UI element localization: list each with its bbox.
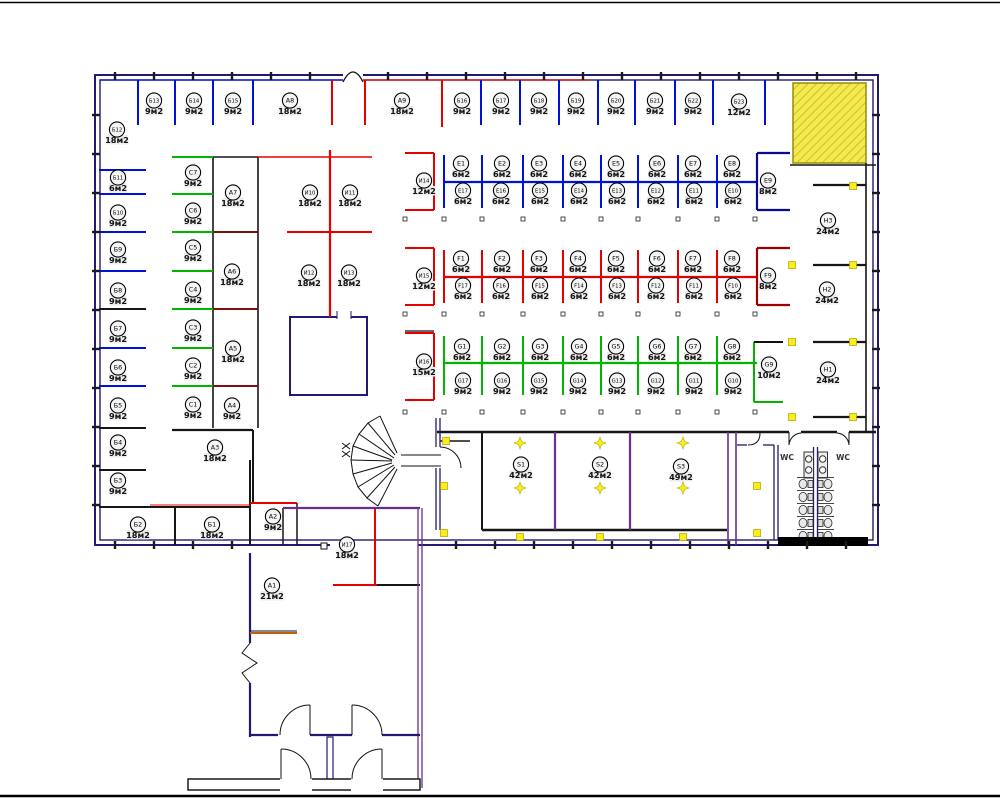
svg-text:Б16: Б16: [457, 99, 468, 105]
room-label: A818м2: [278, 93, 302, 116]
svg-text:6м2: 6м2: [531, 291, 549, 301]
svg-text:F14: F14: [574, 284, 584, 290]
svg-text:Б20: Б20: [611, 99, 622, 105]
svg-text:9м2: 9м2: [184, 371, 202, 381]
svg-text:Б11: Б11: [113, 176, 123, 182]
svg-text:G14: G14: [573, 379, 584, 385]
room-label: G109м2: [724, 373, 742, 396]
room-label: F156м2: [531, 278, 549, 301]
svg-text:Б13: Б13: [149, 99, 159, 105]
svg-text:C4: C4: [189, 286, 198, 294]
svg-text:9м2: 9м2: [454, 386, 472, 396]
svg-text:F17: F17: [458, 284, 468, 290]
svg-text:F1: F1: [457, 255, 465, 263]
svg-text:H3: H3: [824, 217, 833, 225]
svg-text:C3: C3: [189, 324, 198, 332]
room-label: Б116м2: [109, 170, 127, 193]
room-label: F56м2: [607, 251, 625, 274]
svg-text:C2: C2: [189, 362, 198, 370]
room-label: F166м2: [492, 278, 510, 301]
room-label: Б89м2: [109, 283, 127, 306]
room-label: E46м2: [569, 156, 587, 179]
room-label: F126м2: [647, 278, 665, 301]
svg-text:6м2: 6м2: [492, 291, 510, 301]
room-label: Б99м2: [109, 242, 127, 265]
svg-text:A1: A1: [268, 582, 276, 590]
svg-text:6м2: 6м2: [530, 264, 548, 274]
room-label: G139м2: [608, 373, 626, 396]
room-label: F26м2: [493, 251, 511, 274]
room-label: Б169м2: [453, 93, 471, 116]
svg-text:Б14: Б14: [189, 99, 200, 105]
room-label: Б49м2: [109, 435, 127, 458]
svg-text:8м2: 8м2: [759, 281, 777, 291]
room-label: C49м2: [184, 282, 202, 305]
svg-text:6м2: 6м2: [531, 196, 549, 206]
svg-text:G3: G3: [535, 343, 544, 351]
svg-text:6м2: 6м2: [724, 196, 742, 206]
room-label: C69м2: [184, 203, 202, 226]
svg-text:21м2: 21м2: [260, 591, 284, 601]
svg-text:9м2: 9м2: [184, 178, 202, 188]
svg-text:H1: H1: [824, 366, 833, 374]
svg-text:18м2: 18м2: [221, 354, 245, 364]
svg-text:9м2: 9м2: [530, 386, 548, 396]
svg-text:24м2: 24м2: [815, 295, 839, 305]
svg-text:6м2: 6м2: [493, 352, 511, 362]
room-label: G159м2: [530, 373, 548, 396]
svg-text:G4: G4: [574, 343, 583, 351]
svg-text:6м2: 6м2: [647, 291, 665, 301]
room-label: F176м2: [454, 278, 472, 301]
room-label: G119м2: [685, 373, 703, 396]
svg-text:6м2: 6м2: [648, 169, 666, 179]
svg-text:G1: G1: [457, 343, 466, 351]
room-label: И1615м2: [412, 354, 436, 377]
svg-text:E13: E13: [612, 189, 622, 195]
svg-text:A4: A4: [228, 402, 236, 410]
room-label: E86м2: [723, 156, 741, 179]
svg-text:12м2: 12м2: [727, 107, 751, 117]
room-label: F76м2: [684, 251, 702, 274]
room-label: F16м2: [452, 251, 470, 274]
room-label: Б2312м2: [727, 94, 751, 117]
svg-text:9м2: 9м2: [184, 333, 202, 343]
svg-text:E17: E17: [458, 189, 468, 195]
svg-text:24м2: 24м2: [816, 226, 840, 236]
room-label: Б59м2: [109, 398, 127, 421]
svg-text:Б22: Б22: [688, 99, 698, 105]
room-label: C29м2: [184, 358, 202, 381]
svg-text:G2: G2: [497, 343, 506, 351]
svg-text:42м2: 42м2: [509, 470, 533, 480]
room-label: E106м2: [724, 183, 742, 206]
svg-text:9м2: 9м2: [184, 253, 202, 263]
room-label: F116м2: [685, 278, 703, 301]
svg-text:Б23: Б23: [734, 100, 744, 106]
svg-text:F12: F12: [651, 284, 661, 290]
hatched-service-block: [793, 83, 866, 163]
svg-text:G5: G5: [611, 343, 620, 351]
room-label: G66м2: [648, 339, 666, 362]
column-marker: [321, 543, 327, 549]
room-label: Б79м2: [109, 321, 127, 344]
room-label: E156м2: [531, 183, 549, 206]
svg-text:F3: F3: [535, 255, 543, 263]
svg-text:A6: A6: [228, 268, 236, 276]
room-label: И1218м2: [297, 265, 321, 288]
svg-text:E11: E11: [689, 189, 699, 195]
svg-text:И11: И11: [345, 191, 356, 197]
svg-text:6м2: 6м2: [452, 264, 470, 274]
svg-text:И16: И16: [419, 360, 430, 366]
room-label: E126м2: [647, 183, 665, 206]
svg-text:18м2: 18м2: [203, 453, 227, 463]
svg-text:6м2: 6м2: [453, 352, 471, 362]
svg-text:G16: G16: [497, 379, 508, 385]
svg-text:F16: F16: [496, 284, 506, 290]
svg-text:И12: И12: [304, 271, 315, 277]
svg-text:18м2: 18м2: [298, 198, 322, 208]
svg-text:A2: A2: [269, 513, 277, 521]
svg-text:9м2: 9м2: [647, 386, 665, 396]
svg-text:6м2: 6м2: [608, 291, 626, 301]
room-label: F106м2: [724, 278, 742, 301]
room-label: G86м2: [723, 339, 741, 362]
svg-text:A8: A8: [286, 97, 294, 105]
svg-text:G6: G6: [652, 343, 661, 351]
room-label: F98м2: [759, 268, 777, 291]
svg-text:И15: И15: [419, 274, 430, 280]
svg-text:9м2: 9м2: [184, 410, 202, 420]
room-label: H124м2: [816, 362, 840, 385]
svg-text:9м2: 9м2: [184, 216, 202, 226]
svg-text:9м2: 9м2: [109, 255, 127, 265]
svg-text:F13: F13: [612, 284, 622, 290]
room-label: Б209м2: [607, 93, 625, 116]
svg-text:18м2: 18м2: [200, 530, 224, 540]
svg-text:6м2: 6м2: [648, 352, 666, 362]
svg-text:E8: E8: [728, 160, 736, 168]
svg-text:E10: E10: [728, 189, 739, 195]
svg-text:S2: S2: [596, 461, 604, 469]
svg-text:И10: И10: [305, 191, 316, 197]
svg-text:G15: G15: [534, 379, 545, 385]
room-label: Б218м2: [126, 517, 150, 540]
room-label: E36м2: [530, 156, 548, 179]
svg-text:6м2: 6м2: [608, 196, 626, 206]
svg-text:C6: C6: [189, 207, 198, 215]
svg-text:6м2: 6м2: [724, 291, 742, 301]
room-label: Б179м2: [492, 93, 510, 116]
svg-text:E4: E4: [574, 160, 582, 168]
svg-text:6м2: 6м2: [723, 352, 741, 362]
svg-text:18м2: 18м2: [338, 198, 362, 208]
room-label: F66м2: [648, 251, 666, 274]
room-label: F86м2: [723, 251, 741, 274]
room-label: И1018м2: [298, 185, 322, 208]
room-label: Б189м2: [530, 93, 548, 116]
svg-text:Б12: Б12: [112, 128, 122, 134]
svg-text:6м2: 6м2: [454, 291, 472, 301]
svg-text:6м2: 6м2: [493, 264, 511, 274]
svg-text:Б17: Б17: [496, 99, 506, 105]
svg-text:9м2: 9м2: [492, 106, 510, 116]
svg-text:6м2: 6м2: [570, 352, 588, 362]
svg-text:G9: G9: [764, 361, 773, 369]
svg-text:6м2: 6м2: [570, 291, 588, 301]
svg-text:E2: E2: [498, 160, 506, 168]
svg-text:18м2: 18м2: [335, 550, 359, 560]
svg-text:9м2: 9м2: [109, 486, 127, 496]
room-label: H224м2: [815, 282, 839, 305]
grid-ticks: [92, 72, 880, 549]
svg-text:6м2: 6м2: [109, 183, 127, 193]
svg-text:F8: F8: [728, 255, 736, 263]
room-label: E166м2: [492, 183, 510, 206]
room-label: G179м2: [454, 373, 472, 396]
svg-text:9м2: 9м2: [109, 448, 127, 458]
svg-text:18м2: 18м2: [220, 277, 244, 287]
room-label: E56м2: [607, 156, 625, 179]
room-label: A29м2: [264, 509, 282, 532]
svg-text:G8: G8: [727, 343, 736, 351]
svg-text:Б21: Б21: [650, 99, 660, 105]
svg-text:18м2: 18м2: [390, 106, 414, 116]
svg-text:C5: C5: [189, 244, 198, 252]
svg-text:8м2: 8м2: [759, 186, 777, 196]
room-label: A618м2: [220, 264, 244, 287]
svg-text:Б19: Б19: [571, 99, 581, 105]
room-label: Б159м2: [224, 93, 242, 116]
svg-text:G11: G11: [689, 379, 700, 385]
room-label: A518м2: [221, 341, 245, 364]
svg-text:A3: A3: [211, 444, 219, 452]
svg-text:Б18: Б18: [534, 99, 545, 105]
svg-text:E6: E6: [653, 160, 661, 168]
svg-text:9м2: 9м2: [607, 106, 625, 116]
svg-text:9м2: 9м2: [453, 106, 471, 116]
svg-text:F6: F6: [653, 255, 661, 263]
room-label: F146м2: [570, 278, 588, 301]
room-labels-layer: Б139м2Б149м2Б159м2A818м2A918м2Б169м2Б179…: [105, 93, 840, 601]
svg-text:6м2: 6м2: [531, 352, 549, 362]
svg-text:Б3: Б3: [114, 477, 122, 485]
svg-text:12м2: 12м2: [412, 281, 436, 291]
svg-text:Б2: Б2: [134, 521, 142, 529]
svg-text:G12: G12: [651, 379, 662, 385]
svg-text:6м2: 6м2: [493, 169, 511, 179]
svg-text:Б9: Б9: [114, 246, 122, 254]
svg-text:9м2: 9м2: [264, 522, 282, 532]
room-label: G56м2: [607, 339, 625, 362]
room-label: Б229м2: [684, 93, 702, 116]
svg-text:9м2: 9м2: [109, 411, 127, 421]
svg-text:И17: И17: [342, 543, 353, 549]
svg-text:E15: E15: [535, 189, 545, 195]
svg-text:6м2: 6м2: [569, 264, 587, 274]
room-label: G169м2: [493, 373, 511, 396]
svg-text:Б6: Б6: [114, 364, 122, 372]
room-label: E136м2: [608, 183, 626, 206]
svg-text:F4: F4: [574, 255, 582, 263]
svg-text:9м2: 9м2: [685, 386, 703, 396]
wc-left-label: WC: [780, 453, 794, 462]
svg-text:S1: S1: [517, 461, 525, 469]
svg-text:И13: И13: [344, 271, 355, 277]
svg-text:Б4: Б4: [114, 439, 122, 447]
room-label: И1412м2: [412, 173, 436, 196]
svg-text:E14: E14: [574, 189, 585, 195]
svg-text:18м2: 18м2: [278, 106, 302, 116]
svg-text:E1: E1: [457, 160, 465, 168]
room-label: F136м2: [608, 278, 626, 301]
room-label: G76м2: [684, 339, 702, 362]
room-label: Б109м2: [109, 205, 127, 228]
svg-text:9м2: 9м2: [569, 386, 587, 396]
svg-text:C7: C7: [189, 169, 198, 177]
room-label: Б139м2: [145, 93, 163, 116]
svg-text:Б7: Б7: [114, 325, 122, 333]
room-label: Б1218м2: [105, 122, 129, 145]
svg-text:6м2: 6м2: [452, 169, 470, 179]
svg-text:E12: E12: [651, 189, 661, 195]
stair-hall-walls: [436, 418, 461, 530]
svg-text:9м2: 9м2: [724, 386, 742, 396]
room-label: A49м2: [223, 398, 241, 421]
svg-text:9м2: 9м2: [646, 106, 664, 116]
svg-text:C1: C1: [189, 401, 198, 409]
svg-text:Б15: Б15: [228, 99, 238, 105]
room-label: S349м2: [669, 459, 693, 482]
room-label: E98м2: [759, 173, 777, 196]
svg-text:A5: A5: [229, 345, 237, 353]
svg-text:6м2: 6м2: [530, 169, 548, 179]
room-label: E176м2: [454, 183, 472, 206]
room-label: S142м2: [509, 457, 533, 480]
svg-text:9м2: 9м2: [684, 106, 702, 116]
svg-text:E5: E5: [612, 160, 620, 168]
svg-text:6м2: 6м2: [685, 196, 703, 206]
svg-text:E3: E3: [535, 160, 543, 168]
svg-text:F2: F2: [498, 255, 506, 263]
room-label: Б118м2: [200, 517, 224, 540]
room-label: Б69м2: [109, 360, 127, 383]
svg-text:F9: F9: [764, 272, 772, 280]
room-label: E76м2: [684, 156, 702, 179]
room-label: G46м2: [570, 339, 588, 362]
room-label: Б219м2: [646, 93, 664, 116]
svg-text:9м2: 9м2: [223, 411, 241, 421]
svg-text:И14: И14: [419, 179, 430, 185]
svg-text:6м2: 6м2: [607, 169, 625, 179]
lobby-extension: [188, 553, 420, 792]
room-label: F46м2: [569, 251, 587, 274]
wc-dark-strip: [778, 537, 868, 546]
svg-text:E7: E7: [689, 160, 697, 168]
room-label: G149м2: [569, 373, 587, 396]
svg-text:9м2: 9м2: [185, 106, 203, 116]
room-label: Б199м2: [567, 93, 585, 116]
svg-text:F10: F10: [728, 284, 738, 290]
room-label: G129м2: [647, 373, 665, 396]
room-label: C59м2: [184, 240, 202, 263]
svg-text:G17: G17: [458, 379, 469, 385]
svg-text:18м2: 18м2: [105, 135, 129, 145]
room-label: E116м2: [685, 183, 703, 206]
svg-text:G7: G7: [688, 343, 697, 351]
svg-text:6м2: 6м2: [684, 352, 702, 362]
room-label: Б39м2: [109, 473, 127, 496]
room-label: Б149м2: [185, 93, 203, 116]
svg-text:10м2: 10м2: [757, 370, 781, 380]
svg-text:18м2: 18м2: [337, 278, 361, 288]
svg-text:6м2: 6м2: [647, 196, 665, 206]
room-label: S242м2: [588, 457, 612, 480]
room-label: G36м2: [531, 339, 549, 362]
svg-text:18м2: 18м2: [126, 530, 150, 540]
svg-text:G13: G13: [612, 379, 623, 385]
svg-text:F11: F11: [689, 284, 699, 290]
svg-text:E9: E9: [764, 177, 772, 185]
svg-text:9м2: 9м2: [109, 218, 127, 228]
staircase: [342, 416, 441, 506]
svg-text:6м2: 6м2: [684, 169, 702, 179]
wc-right-label: WC: [836, 453, 850, 462]
floor-plan-page: WC WC Б139м2Б149м2Б159м2A818м2A918м2Б169…: [0, 0, 1000, 800]
partitions-red: [150, 80, 757, 585]
svg-text:Б5: Б5: [114, 402, 122, 410]
room-label: E16м2: [452, 156, 470, 179]
room-label: G16м2: [453, 339, 471, 362]
svg-text:24м2: 24м2: [816, 375, 840, 385]
room-label: H324м2: [816, 213, 840, 236]
svg-text:6м2: 6м2: [569, 169, 587, 179]
room-label: E146м2: [570, 183, 588, 206]
svg-text:6м2: 6м2: [570, 196, 588, 206]
svg-text:6м2: 6м2: [723, 169, 741, 179]
svg-text:6м2: 6м2: [607, 352, 625, 362]
svg-text:9м2: 9м2: [109, 296, 127, 306]
svg-text:9м2: 9м2: [109, 334, 127, 344]
core-room: [290, 311, 367, 395]
svg-text:6м2: 6м2: [684, 264, 702, 274]
svg-text:9м2: 9м2: [567, 106, 585, 116]
room-label: И1512м2: [412, 268, 436, 291]
room-label: A718м2: [221, 185, 245, 208]
svg-text:9м2: 9м2: [493, 386, 511, 396]
floor-plan-canvas: WC WC Б139м2Б149м2Б159м2A818м2A918м2Б169…: [0, 0, 1000, 800]
svg-text:6м2: 6м2: [454, 196, 472, 206]
svg-text:S3: S3: [677, 463, 685, 471]
svg-text:18м2: 18м2: [221, 198, 245, 208]
svg-text:9м2: 9м2: [608, 386, 626, 396]
room-label: A121м2: [260, 578, 284, 601]
room-label: C19м2: [184, 397, 202, 420]
svg-text:H2: H2: [823, 286, 832, 294]
svg-text:F5: F5: [612, 255, 620, 263]
svg-text:F15: F15: [535, 284, 545, 290]
svg-text:9м2: 9м2: [109, 373, 127, 383]
svg-text:9м2: 9м2: [184, 295, 202, 305]
svg-text:6м2: 6м2: [607, 264, 625, 274]
svg-text:42м2: 42м2: [588, 470, 612, 480]
svg-text:9м2: 9м2: [530, 106, 548, 116]
room-label: A918м2: [390, 93, 414, 116]
room-label: И1318м2: [337, 265, 361, 288]
svg-text:6м2: 6м2: [685, 291, 703, 301]
svg-text:9м2: 9м2: [224, 106, 242, 116]
